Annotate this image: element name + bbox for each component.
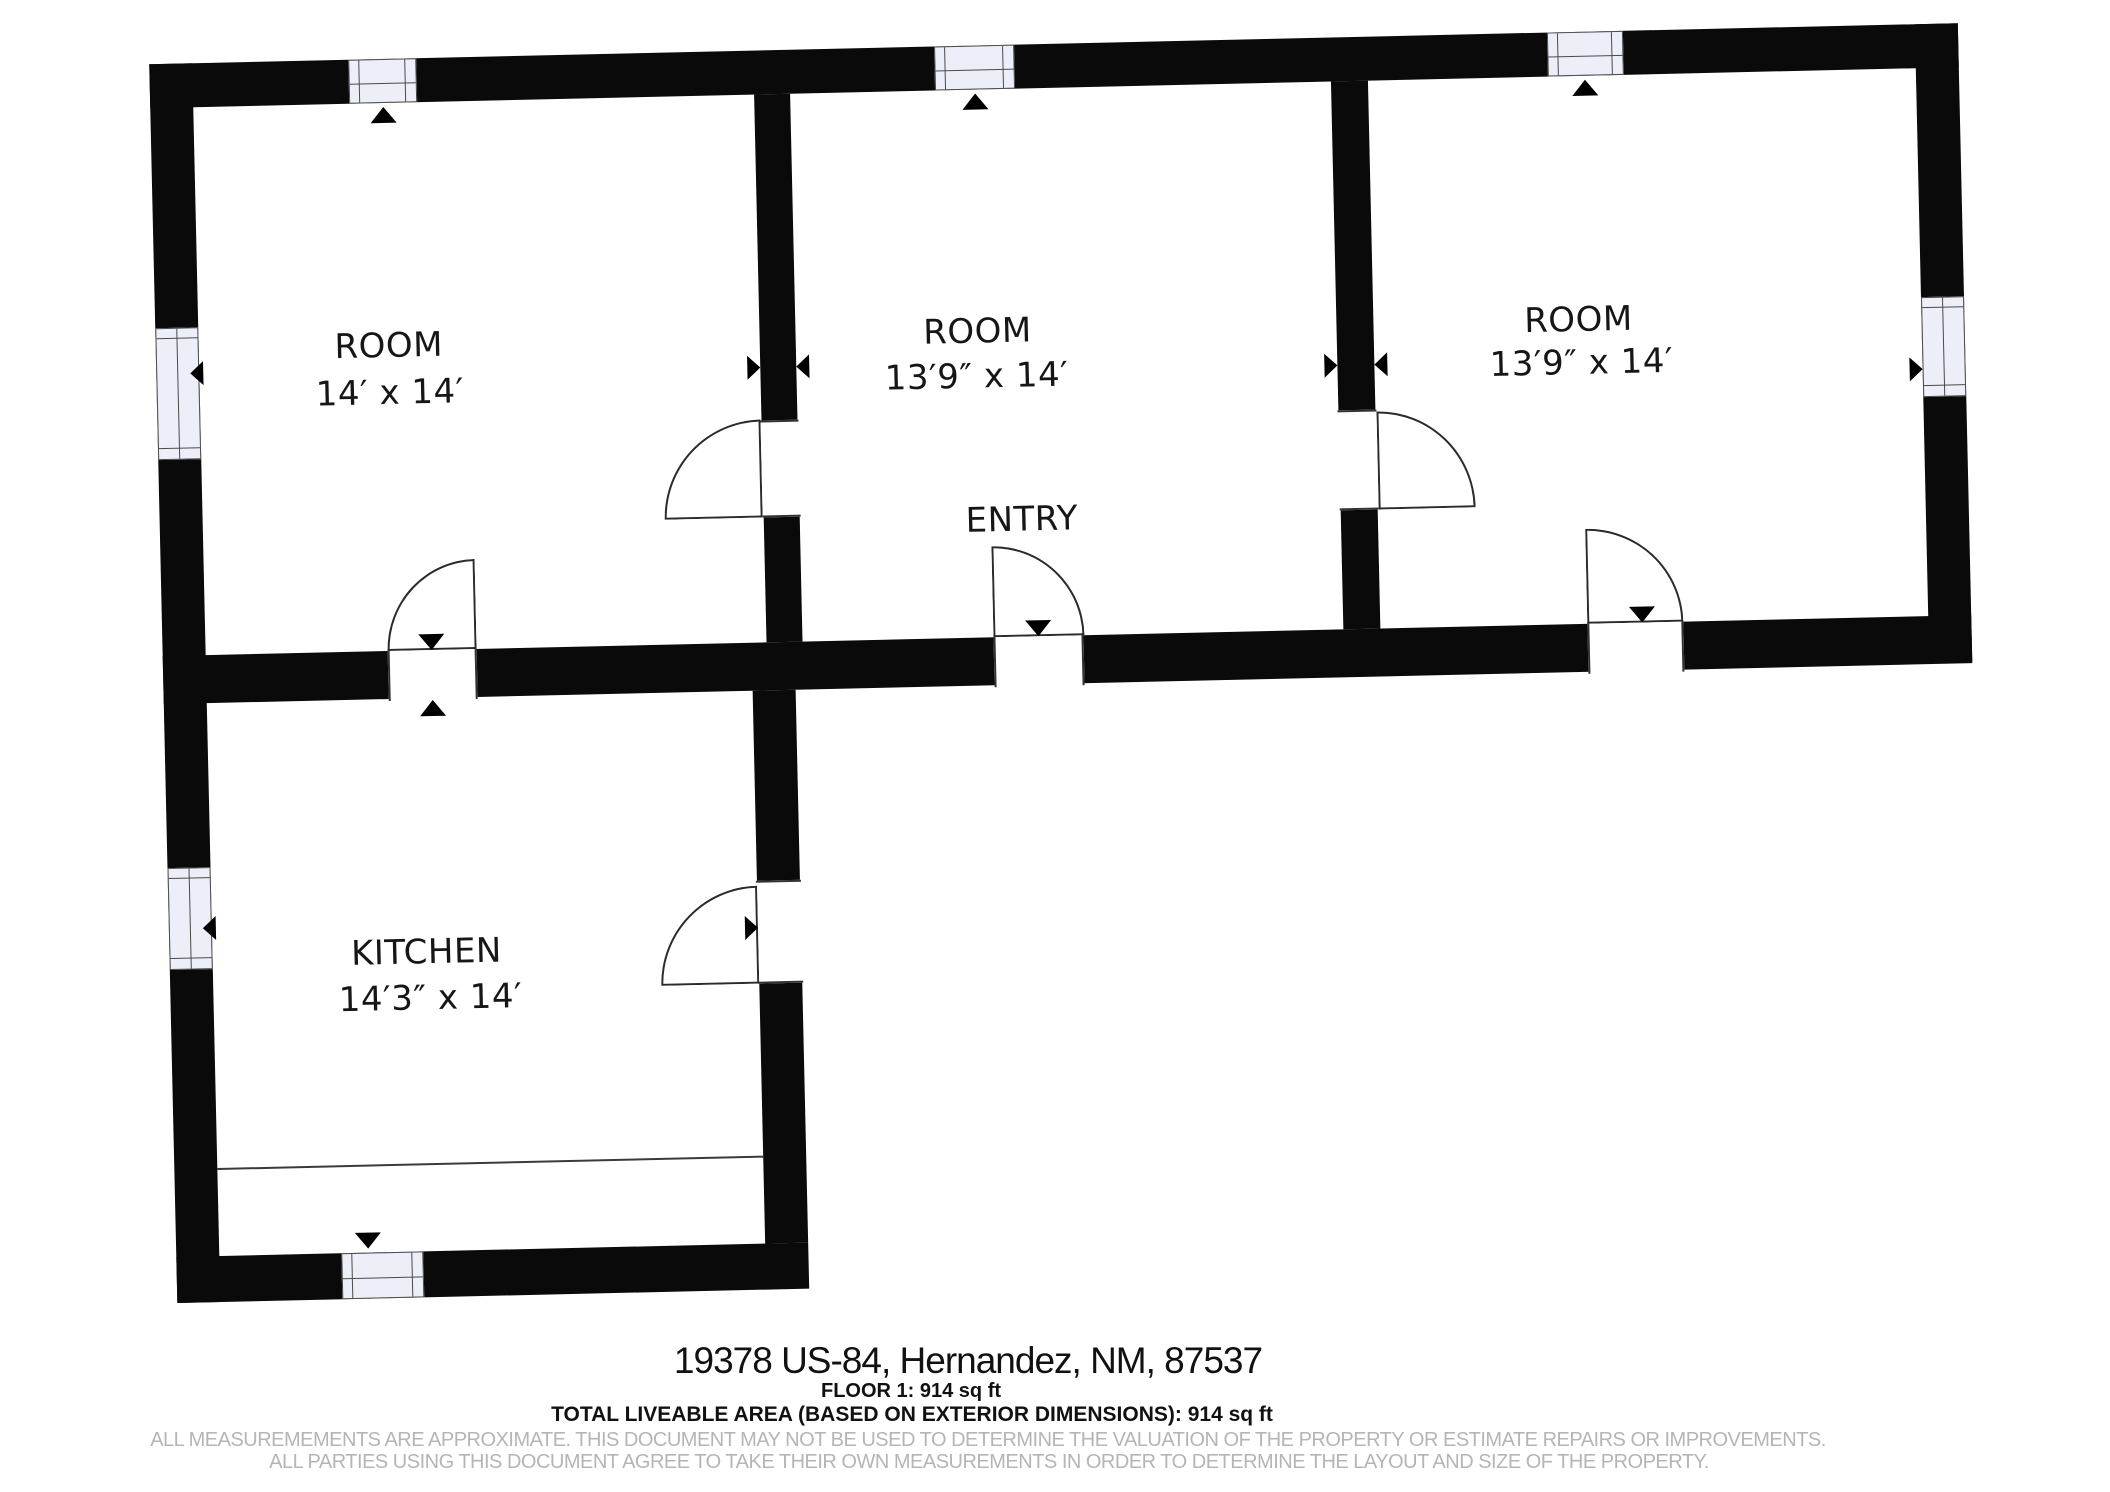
- marker-window-room3-right-icon: [1909, 357, 1923, 381]
- marker-room3-door-icon: [1629, 606, 1655, 623]
- entry-label: ENTRY: [965, 498, 1078, 541]
- kitchen-name-label: KITCHEN: [351, 931, 503, 974]
- door-opening-entry: [993, 633, 1084, 687]
- marker-wall12-right-icon: [796, 354, 810, 378]
- room1-dims-label: 14′ x 14′: [315, 371, 464, 414]
- wall-room2-room3: [1331, 81, 1380, 630]
- room1-name-label: ROOM: [334, 325, 443, 367]
- floor-plan: ROOM 14′ x 14′ ROOM 13′9″ x 14′ ROOM 13′…: [0, 0, 2110, 1492]
- marker-entry-door-icon: [1025, 620, 1051, 637]
- marker-window-room3-top-icon: [1572, 79, 1598, 96]
- door-opening-room2-room3: [1337, 410, 1378, 511]
- room3-name-label: ROOM: [1524, 299, 1633, 341]
- marker-kitchen-door-bottom-icon: [420, 700, 446, 717]
- room2-name-label: ROOM: [923, 310, 1032, 352]
- marker-window-room2-top-icon: [962, 93, 988, 110]
- door-opening-room3-bottom: [1587, 620, 1684, 674]
- marker-window-room1-top-icon: [370, 107, 396, 124]
- wall-kitchen-bottom: [176, 1243, 809, 1303]
- marker-kitchen-right-door-icon: [745, 916, 759, 940]
- marker-wall23-left-icon: [1324, 353, 1338, 377]
- marker-kitchen-door-top-icon: [418, 634, 444, 651]
- door-opening-room1-room2: [760, 420, 800, 518]
- room3-dims-label: 13′9″ x 14′: [1489, 341, 1673, 385]
- disclaimer-line-2: ALL PARTIES USING THIS DOCUMENT AGREE TO…: [269, 1451, 1709, 1474]
- disclaimer-line-1: ALL MEASUREMEMENTS ARE APPROXIMATE. THIS…: [150, 1429, 1826, 1452]
- marker-window-room1-left-icon: [190, 361, 204, 385]
- window-room3-top: [1547, 31, 1624, 77]
- kitchen-counter-line: [217, 1156, 763, 1170]
- floorplan-page: ROOM 14′ x 14′ ROOM 13′9″ x 14′ ROOM 13′…: [0, 0, 2110, 1492]
- wall-top: [149, 23, 1959, 108]
- door-opening-kitchen-right: [756, 880, 803, 984]
- total-area-text: TOTAL LIVEABLE AREA (BASED ON EXTERIOR D…: [551, 1403, 1273, 1427]
- door-opening-room1-kitchen: [388, 647, 478, 701]
- door-swing-room2-room3: [1376, 409, 1475, 509]
- window-room3-right: [1921, 296, 1966, 397]
- window-kitchen-bottom: [341, 1251, 424, 1299]
- room2-dims-label: 13′9″ x 14′: [884, 355, 1068, 399]
- marker-wall23-right-icon: [1374, 352, 1388, 376]
- floor-area-text: FLOOR 1: 914 sq ft: [821, 1380, 1001, 1403]
- window-room1-top: [348, 58, 417, 104]
- marker-window-kitchen-bottom-icon: [355, 1232, 381, 1249]
- window-room1-left: [155, 327, 201, 460]
- wall-room1-room2: [754, 94, 802, 643]
- kitchen-dims-label: 14′3″ x 14′: [338, 976, 522, 1020]
- address-title: 19378 US-84, Hernandez, NM, 87537: [674, 1340, 1262, 1382]
- door-swing-room1-room2: [662, 420, 762, 520]
- marker-window-kitchen-left-icon: [203, 916, 217, 940]
- window-room2-top: [934, 45, 1015, 91]
- marker-wall12-left-icon: [747, 356, 761, 380]
